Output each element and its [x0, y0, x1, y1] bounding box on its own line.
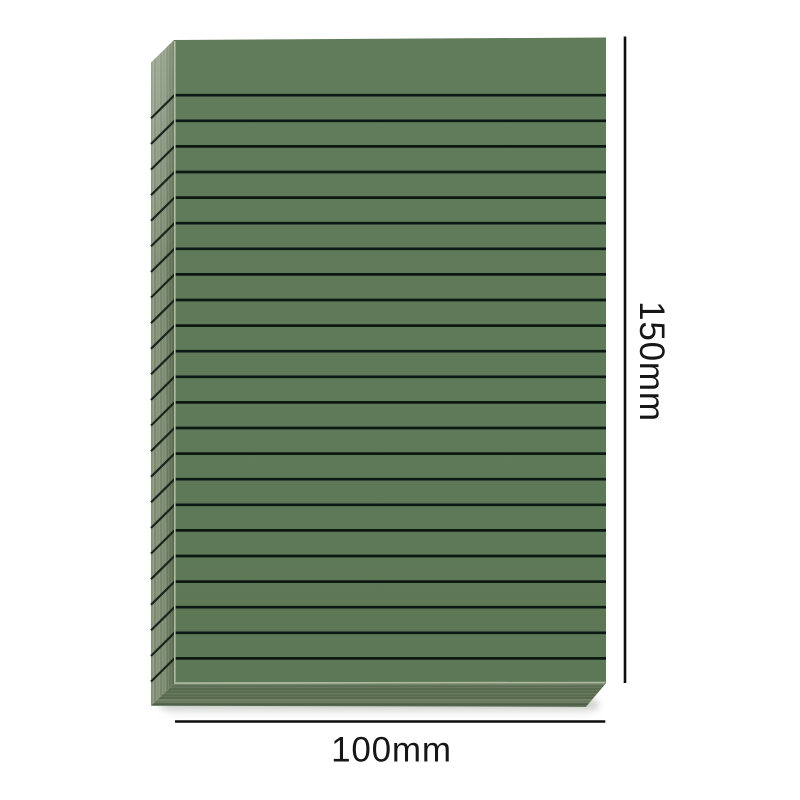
svg-text:150mm: 150mm: [632, 301, 671, 422]
svg-text:100mm: 100mm: [331, 731, 452, 770]
